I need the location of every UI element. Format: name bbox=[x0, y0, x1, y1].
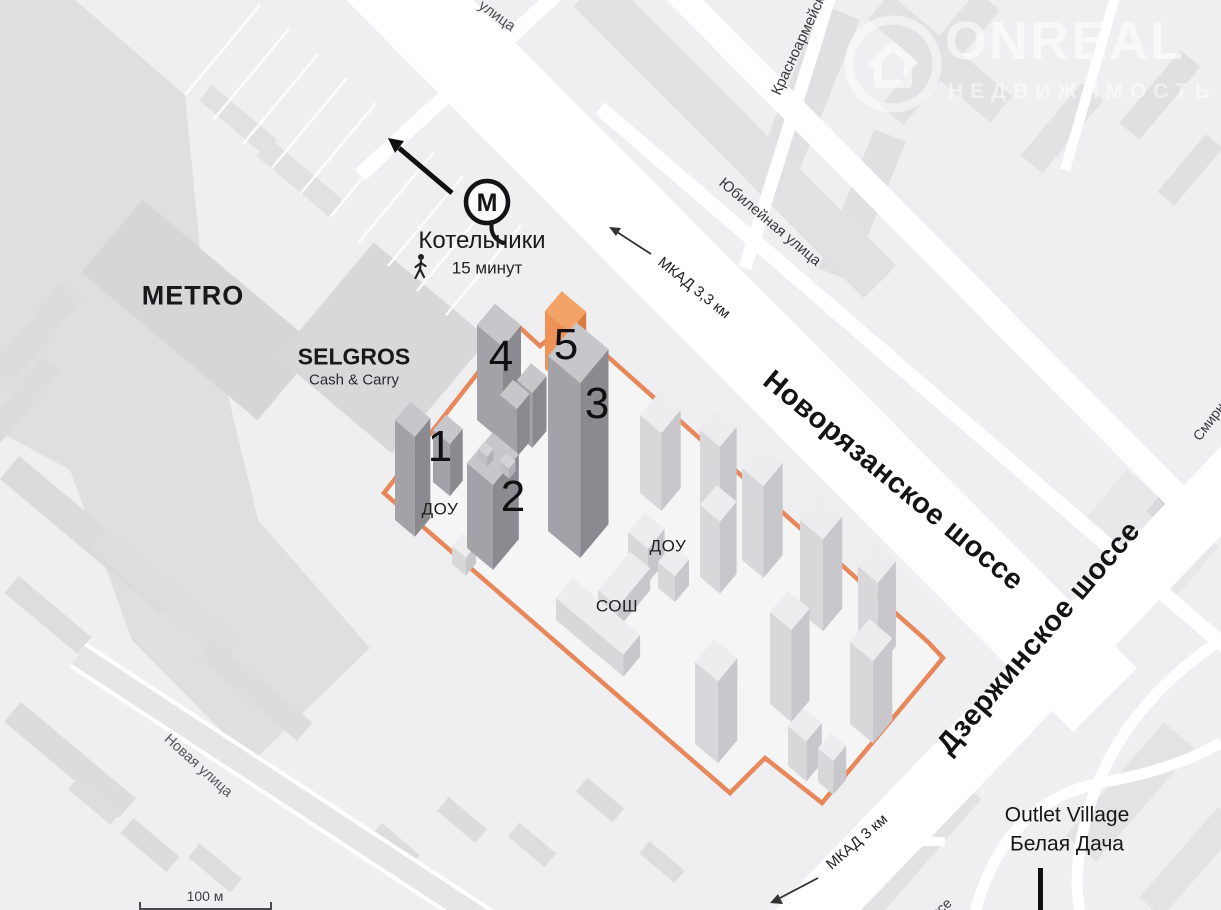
map-canvas: М bbox=[0, 0, 1221, 910]
metro-symbol-glyph: М bbox=[477, 189, 498, 217]
future-building bbox=[695, 639, 737, 763]
poi-label-selgros: SELGROS bbox=[298, 346, 410, 369]
poi-label-outlet-line1: Outlet Village bbox=[1005, 805, 1130, 826]
poi-label-outlet-line2: Белая Дача bbox=[1010, 834, 1124, 855]
building-number-1: 1 bbox=[428, 425, 452, 469]
walking-person-icon bbox=[412, 253, 430, 283]
metro-station-name: Котельники bbox=[418, 229, 545, 253]
site-map: М улица Красноармейская Юбилейная улица … bbox=[0, 0, 1221, 910]
building-number-3: 3 bbox=[585, 382, 609, 426]
facility-label-school: СОШ bbox=[596, 598, 638, 615]
outlet-pointer-line bbox=[1038, 868, 1043, 910]
facility-label-dou-left: ДОУ bbox=[422, 501, 459, 518]
poi-label-metro-store: METRO bbox=[142, 283, 245, 310]
scale-label: 100 м bbox=[187, 889, 224, 903]
future-building bbox=[700, 485, 737, 594]
future-building bbox=[850, 619, 892, 743]
future-building bbox=[770, 591, 810, 722]
building-number-5: 5 bbox=[554, 323, 578, 367]
poi-label-selgros-subtitle: Cash & Carry bbox=[309, 373, 399, 388]
building-number-2: 2 bbox=[501, 475, 525, 519]
facility-label-dou-center: ДОУ bbox=[650, 538, 687, 555]
future-building bbox=[640, 392, 681, 511]
walk-time-label: 15 минут bbox=[452, 260, 523, 277]
building-number-4: 4 bbox=[489, 335, 513, 379]
future-building bbox=[742, 445, 783, 578]
